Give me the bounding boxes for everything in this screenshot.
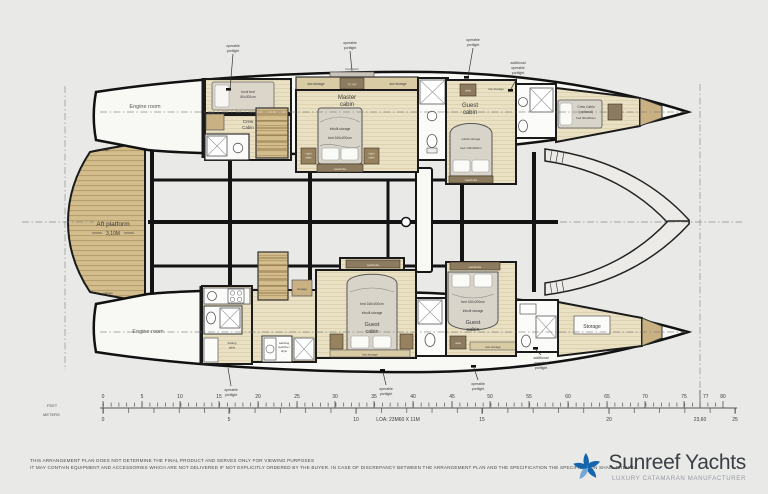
- svg-text:5: 5: [141, 394, 144, 400]
- folding-table-label-2: table: [229, 346, 236, 350]
- svg-text:10: 10: [353, 417, 359, 423]
- loa-meters-number: 23,60: [694, 417, 707, 423]
- toilet: [522, 335, 531, 347]
- shower: [530, 88, 553, 112]
- engine-room-label-top: Engine room: [129, 104, 161, 110]
- aft-platform-dimension: 3,10M: [106, 231, 120, 237]
- portlight: [533, 347, 538, 350]
- laundry-corridor: storage washing machine / dryer: [252, 252, 316, 362]
- svg-text:0: 0: [102, 394, 105, 400]
- toilet: [425, 334, 435, 347]
- disclaimer-line-1: THIS ARRANGEMENT PLAN DOES NOT DETERMINE…: [30, 458, 638, 465]
- pillow: [472, 160, 489, 172]
- svg-text:25: 25: [732, 417, 738, 423]
- crew-cabin-label-2: Cabin: [242, 125, 254, 130]
- cabinet: [206, 114, 224, 130]
- desk-label: desk: [465, 89, 472, 93]
- svg-text:additional: additional: [534, 356, 549, 360]
- mid-bathroom-bottom: [416, 298, 446, 356]
- wardrobe-label: wardrobe: [465, 178, 478, 182]
- washbasin: [233, 143, 243, 153]
- washing-label-3: dryer: [281, 349, 287, 353]
- wardrobe-label: wardrobe: [334, 167, 347, 171]
- railings-label-top: railings: [99, 148, 109, 152]
- svg-text:55: 55: [526, 394, 532, 400]
- pillow: [453, 160, 470, 172]
- master-cabin: low storage TV 40" low storage fixed hat…: [296, 67, 418, 172]
- aft-platform-label: Aft platform: [96, 221, 129, 228]
- washbasin: [427, 111, 437, 121]
- loa-label: LOA: 23M60 X 11M: [376, 417, 420, 423]
- master-bed-label: bed 160x200cm: [328, 136, 352, 140]
- counter: [204, 338, 218, 362]
- svg-text:operable: operable: [224, 388, 238, 392]
- svg-text:operable: operable: [534, 361, 548, 365]
- svg-text:operable: operable: [511, 66, 525, 70]
- toilet: [207, 312, 216, 324]
- mast-foot: [402, 218, 411, 227]
- svg-text:80: 80: [720, 394, 726, 400]
- pillow: [474, 274, 492, 287]
- meter-major-ticks: [103, 408, 735, 414]
- svg-text:30: 30: [332, 394, 338, 400]
- callout-operable-portlight-5: operable portlight: [379, 372, 393, 396]
- bow-bathroom-top: [516, 84, 556, 138]
- low-storage-label: low storage: [488, 87, 504, 91]
- guest-aft-label-1: Guest: [365, 322, 380, 328]
- portlight: [225, 364, 230, 367]
- svg-text:operable: operable: [226, 44, 240, 48]
- storage-bow: Storage: [558, 302, 662, 356]
- bunk-bed-size: 80x200cm: [240, 95, 255, 99]
- disclaimer-line-2: IT MAY CONTAIN EQUIPMENT AND ACCESSORIES…: [30, 465, 638, 472]
- shower: [294, 338, 314, 360]
- crew-bow-label-1: Crew Cabin: [577, 105, 594, 109]
- callout-operable-portlight-3: operable portlight: [466, 38, 480, 77]
- shower: [536, 316, 556, 338]
- railings-label-bottom: railings: [103, 291, 113, 295]
- foredeck-beam-lower: [545, 221, 689, 295]
- svg-text:table: table: [305, 156, 312, 160]
- svg-text:operable: operable: [343, 41, 357, 45]
- desk-label: desk: [455, 341, 462, 345]
- bed-label: bed 160x200cm: [461, 300, 485, 304]
- inbuilt-label: inbuilt storage: [362, 311, 383, 315]
- stove: [228, 289, 244, 303]
- guest-label-2: cabin: [463, 110, 477, 116]
- storage-small-label: storage: [297, 287, 307, 291]
- loa-feet-number: 77: [703, 394, 709, 400]
- guest-bed-label: bed 140x200cm: [460, 146, 482, 150]
- crew-cabin-bow: Crew Cabin (optional) bed 90x200cm: [556, 88, 662, 142]
- guest-cabin-top: desk low storage Guest cabin inbuilt sto…: [446, 80, 516, 184]
- pillow: [351, 336, 369, 348]
- svg-text:75: 75: [681, 394, 687, 400]
- svg-text:35: 35: [371, 394, 377, 400]
- svg-text:5: 5: [228, 417, 231, 423]
- svg-text:additional: additional: [511, 61, 526, 65]
- low-storage-right: low storage: [390, 82, 407, 86]
- folding-table-label-1: folding: [228, 341, 237, 345]
- foredeck-beam-upper: [545, 149, 689, 223]
- storage-bow-label: Storage: [583, 324, 601, 330]
- low-storage-left: low storage: [308, 82, 325, 86]
- svg-text:operable: operable: [466, 38, 480, 42]
- brand-tagline: LUXURY CATAMARAN MANUFACTURER: [612, 475, 746, 482]
- svg-text:20: 20: [255, 394, 261, 400]
- svg-text:40: 40: [410, 394, 416, 400]
- svg-text:50: 50: [487, 394, 493, 400]
- svg-text:portlight: portlight: [535, 366, 547, 370]
- master-inbuilt-label: inbuilt storage: [330, 127, 351, 131]
- svg-text:65: 65: [604, 394, 610, 400]
- pillow: [560, 103, 572, 125]
- low-storage-label: low storage: [362, 352, 378, 356]
- svg-text:70: 70: [642, 394, 648, 400]
- pillow: [341, 148, 358, 160]
- low-storage-label: low storage: [485, 345, 501, 349]
- washbasin: [519, 98, 528, 107]
- arrangement-plan-page: Aft platform 3,10M railings railings Eng…: [0, 0, 768, 494]
- svg-text:operable: operable: [379, 387, 393, 391]
- sink: [208, 292, 217, 301]
- guest-inbuilt-label: inbuilt storage: [462, 137, 481, 141]
- starfish-icon: [572, 452, 602, 482]
- shower: [418, 300, 442, 324]
- svg-text:20: 20: [606, 417, 612, 423]
- toilet: [519, 120, 528, 132]
- shower: [207, 136, 227, 156]
- toilet: [427, 135, 437, 148]
- disclaimer: THIS ARRANGEMENT PLAN DOES NOT DETERMINE…: [30, 458, 638, 471]
- svg-text:15: 15: [216, 394, 222, 400]
- portlight: [508, 89, 513, 92]
- night-table-right: [400, 334, 413, 349]
- wardrobe-label: wardrobe: [367, 263, 380, 267]
- meters-label: METERS: [43, 412, 60, 417]
- svg-text:45: 45: [449, 394, 455, 400]
- master-bathroom: [418, 78, 448, 160]
- guest-fwd-label-1: Guest: [466, 320, 481, 326]
- staircase: [256, 108, 288, 158]
- fixed-hatch: [330, 72, 374, 77]
- crew-cabin-aft: bunk bed 80x200cm Crew Cabin: [205, 79, 291, 160]
- guest-cabin-bottom-aft: wardrobe bed 160x200cm inbuilt storage G…: [316, 258, 416, 358]
- feet-numbers: 0 5 10 15 20 25 30 35 40 45 50 55 60 65 …: [102, 394, 726, 400]
- deck-plan-drawing: Aft platform 3,10M railings railings Eng…: [0, 0, 768, 494]
- guest-label-1: Guest: [462, 103, 478, 109]
- crew-cabin-label-1: Crew: [243, 119, 254, 124]
- sunreef-logo: Sunreef Yachts LUXURY CATAMARAN MANUFACT…: [572, 452, 746, 482]
- svg-text:portlight: portlight: [472, 387, 484, 391]
- brand-name: Sunreef Yachts: [609, 452, 746, 474]
- pillow: [373, 336, 391, 348]
- master-label-2: cabin: [340, 102, 354, 108]
- svg-text:portlight: portlight: [225, 393, 237, 397]
- crew-bow-bed-label: bed 90x200cm: [576, 116, 596, 120]
- mast-casing: [416, 168, 432, 272]
- bow-bathroom-bottom: [516, 300, 558, 352]
- wardrobe-label: wardrobe: [469, 265, 482, 269]
- guest-cabin-bottom-fwd: wardrobe bed 160x200cm inbuilt storage G…: [446, 262, 516, 356]
- svg-text:portlight: portlight: [512, 71, 524, 75]
- svg-text:table: table: [368, 156, 375, 160]
- svg-text:15: 15: [479, 417, 485, 423]
- night-table-left: [330, 334, 343, 349]
- feet-label: FEET: [47, 403, 58, 408]
- washbasin-counter: [520, 304, 536, 314]
- shower: [220, 308, 240, 328]
- callout-operable-portlight-4: operable portlight: [224, 368, 238, 397]
- svg-text:portlight: portlight: [344, 46, 356, 50]
- svg-text:portlight: portlight: [467, 43, 479, 47]
- svg-text:portlight: portlight: [380, 392, 392, 396]
- svg-text:10: 10: [177, 394, 183, 400]
- master-label-1: Master: [338, 95, 356, 101]
- inbuilt-label: inbuilt storage: [463, 309, 484, 313]
- galley-block: folding table: [202, 286, 252, 364]
- pillow: [322, 148, 339, 160]
- svg-text:0: 0: [102, 417, 105, 423]
- svg-text:portlight: portlight: [227, 49, 239, 53]
- svg-text:25: 25: [294, 394, 300, 400]
- svg-text:60: 60: [565, 394, 571, 400]
- tv-label: TV 40": [347, 83, 356, 87]
- svg-text:operable: operable: [471, 382, 485, 386]
- pillow: [452, 274, 470, 287]
- portlight: [471, 365, 476, 368]
- portlight: [380, 369, 385, 372]
- meter-numbers: 0 5 10 15 20 25 23,60: [102, 417, 738, 423]
- shower: [420, 80, 445, 104]
- bunk-bed-label: bunk bed: [241, 90, 255, 94]
- bed-label: bed 160x200cm: [360, 302, 384, 306]
